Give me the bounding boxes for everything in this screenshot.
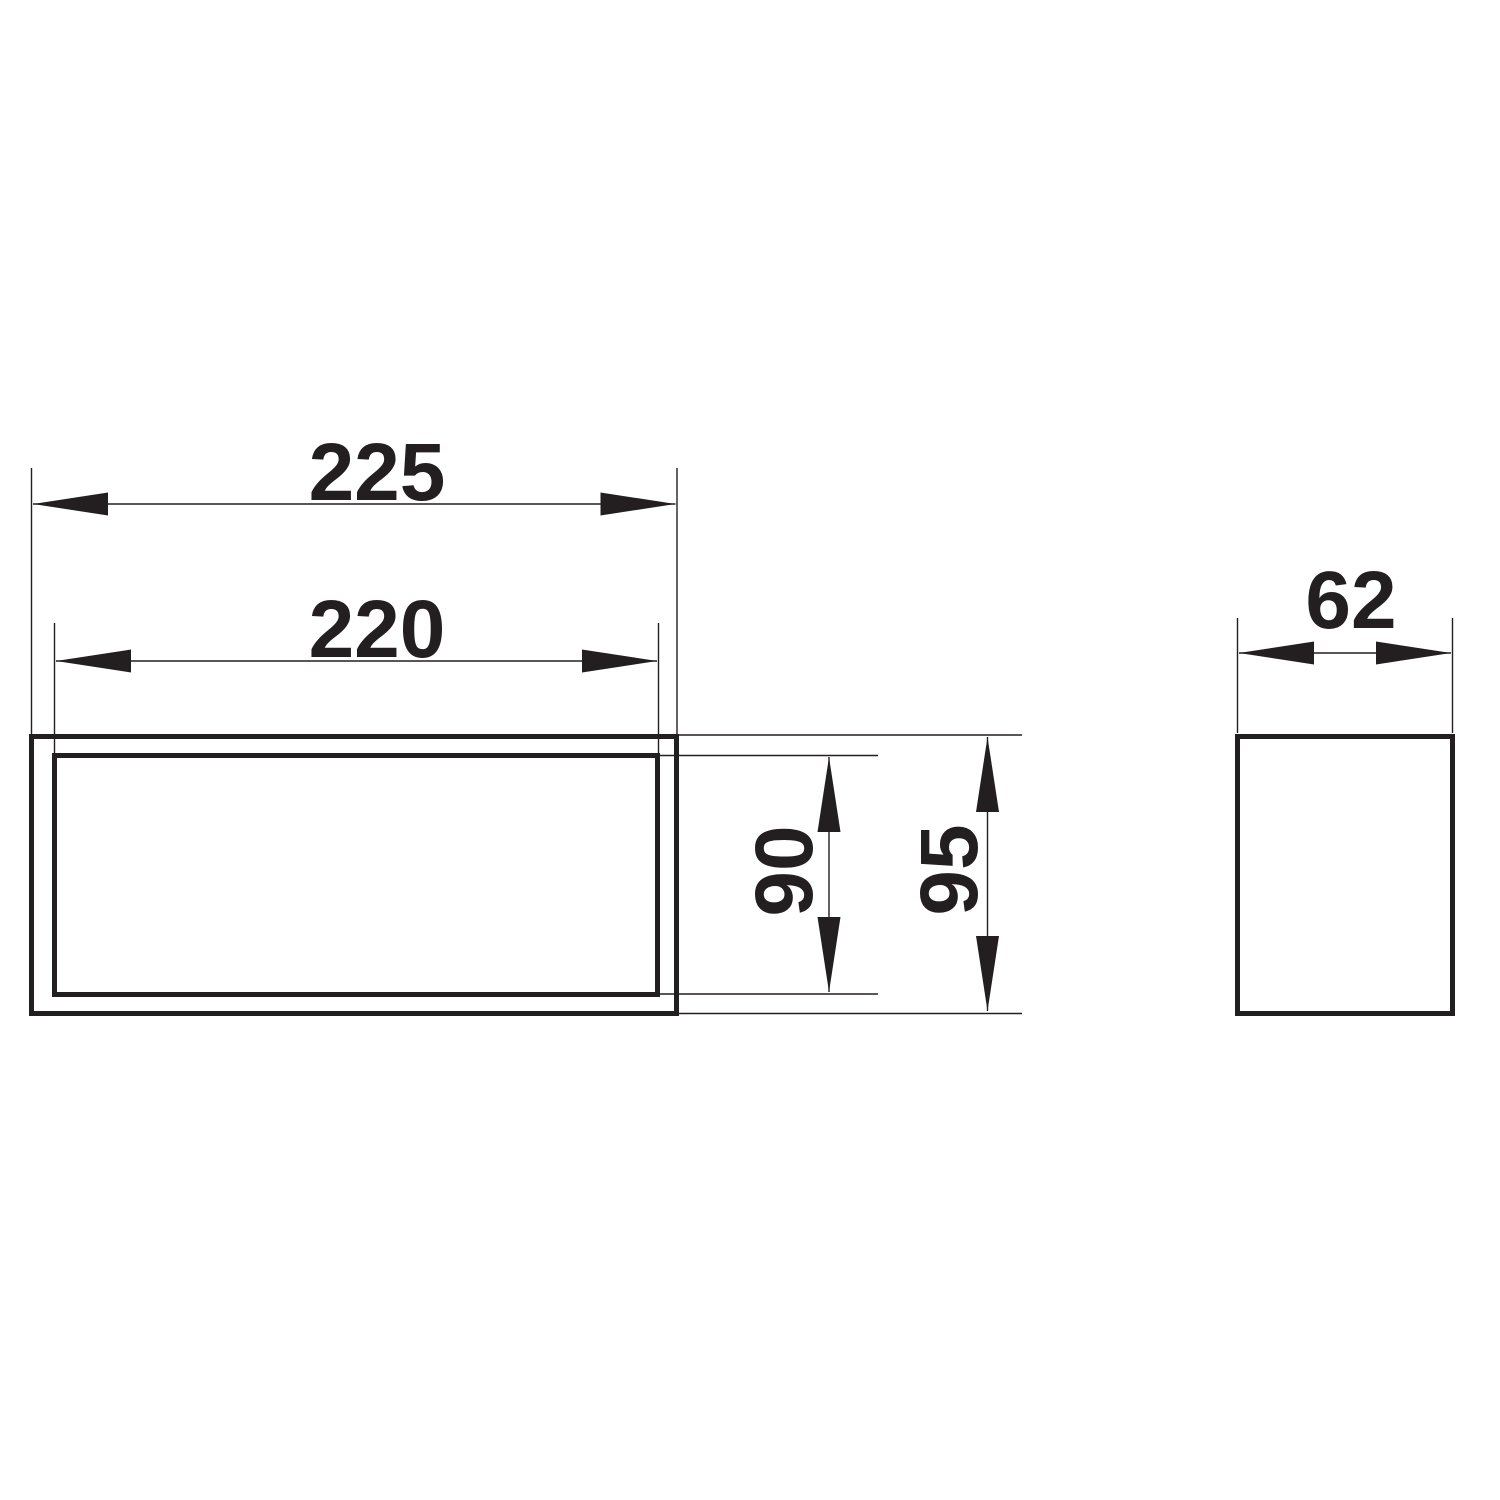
dimension-label-225: 225: [309, 427, 446, 518]
front-view: [32, 737, 677, 1014]
dimension-inner-width: 220: [55, 584, 659, 753]
arrow-up-icon: [818, 757, 841, 832]
duct-dimension-drawing: 225 220 90 95: [0, 0, 1500, 1500]
dimension-label-95: 95: [904, 824, 995, 915]
arrow-down-icon: [976, 936, 999, 1011]
arrow-right-icon: [582, 650, 657, 673]
technical-drawing-page: 225 220 90 95: [0, 0, 1500, 1500]
dimension-label-90: 90: [739, 825, 830, 916]
arrow-up-icon: [976, 737, 999, 812]
side-view: [1238, 737, 1453, 1014]
dimension-outer-height: 95: [679, 735, 1022, 1014]
dimension-depth: 62: [1238, 555, 1453, 733]
arrow-left-icon: [1239, 642, 1314, 665]
arrow-left-icon: [56, 650, 131, 673]
front-view-outer-rect: [32, 737, 677, 1014]
arrow-left-icon: [33, 493, 108, 516]
dimension-outer-width: 225: [32, 427, 678, 734]
side-view-rect: [1238, 737, 1453, 1014]
arrow-right-icon: [601, 493, 676, 516]
dimension-inner-height: 90: [660, 756, 878, 995]
dimension-label-62: 62: [1305, 555, 1396, 646]
front-view-inner-rect: [55, 756, 658, 995]
dimension-label-220: 220: [309, 584, 446, 675]
arrow-down-icon: [818, 917, 841, 992]
